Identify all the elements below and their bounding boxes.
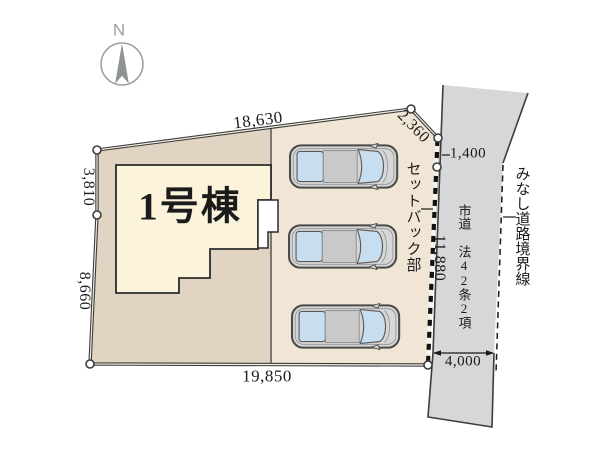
building-label: 1号棟 (138, 188, 242, 227)
car-icon (290, 143, 397, 189)
site-plan: N 18,630 2,360 3,810 8,660 11,880 19,850… (0, 0, 600, 459)
car-icon (289, 223, 396, 269)
dim-left-upper: 3,810 (80, 168, 96, 207)
dim-road-frontage: 11,880 (431, 235, 447, 281)
dim-bottom: 19,850 (242, 368, 292, 385)
compass-icon (101, 43, 143, 85)
car-icon (292, 303, 399, 349)
dim-road-width: 4,000 (445, 355, 481, 370)
site-plan-canvas (0, 0, 600, 459)
road-name-label: 市道 法42条2項 (458, 204, 471, 329)
dim-left-lower: 8,660 (76, 272, 92, 311)
dim-right-upper: 1,400 (450, 147, 486, 162)
compass-north-label: N (113, 22, 125, 39)
setback-label: セットバック部 (405, 161, 420, 273)
deemed-road-boundary-label: みなし道路境界線 (514, 166, 529, 286)
